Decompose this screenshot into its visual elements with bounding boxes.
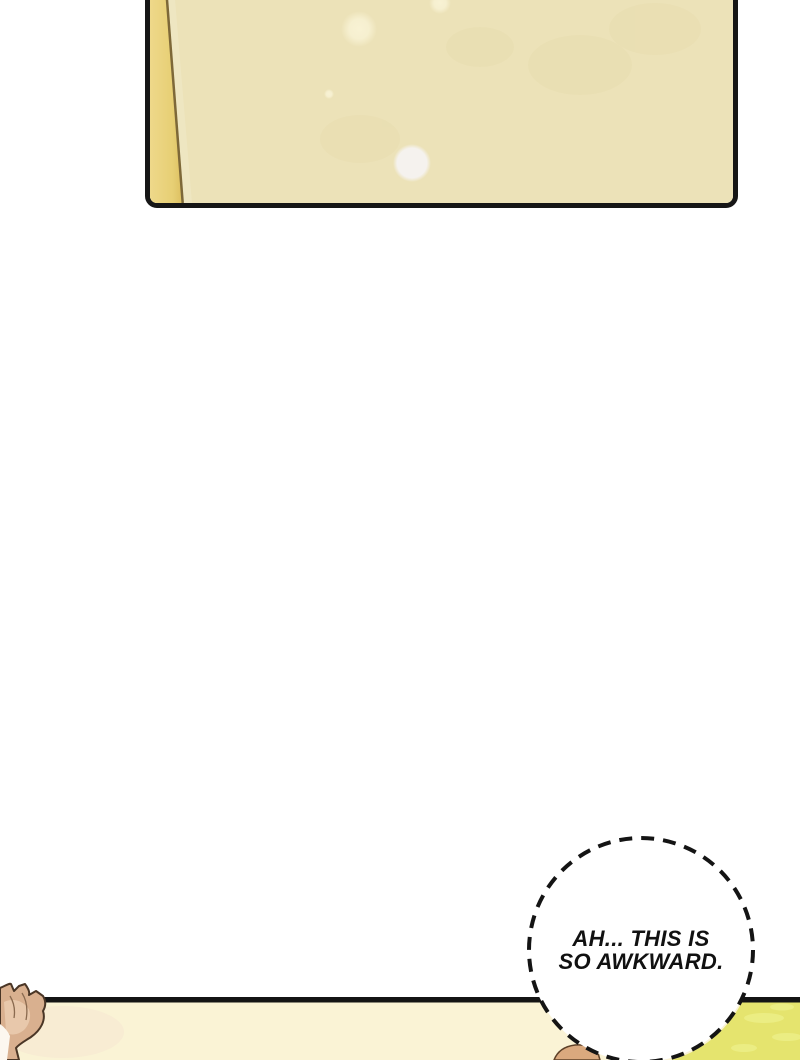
comic-page: AH... THIS IS SO AWKWARD. (0, 0, 800, 1060)
bright-spot (393, 144, 431, 182)
speech-bubble-text: AH... THIS IS SO AWKWARD. (527, 836, 755, 1060)
light-spot-3 (324, 89, 334, 99)
bubble-line-2: SO AWKWARD. (558, 950, 723, 973)
light-spot-1 (341, 11, 377, 47)
top-panel-art (150, 0, 733, 203)
bubble-line-1: AH... THIS IS (572, 927, 709, 950)
top-panel (145, 0, 738, 208)
